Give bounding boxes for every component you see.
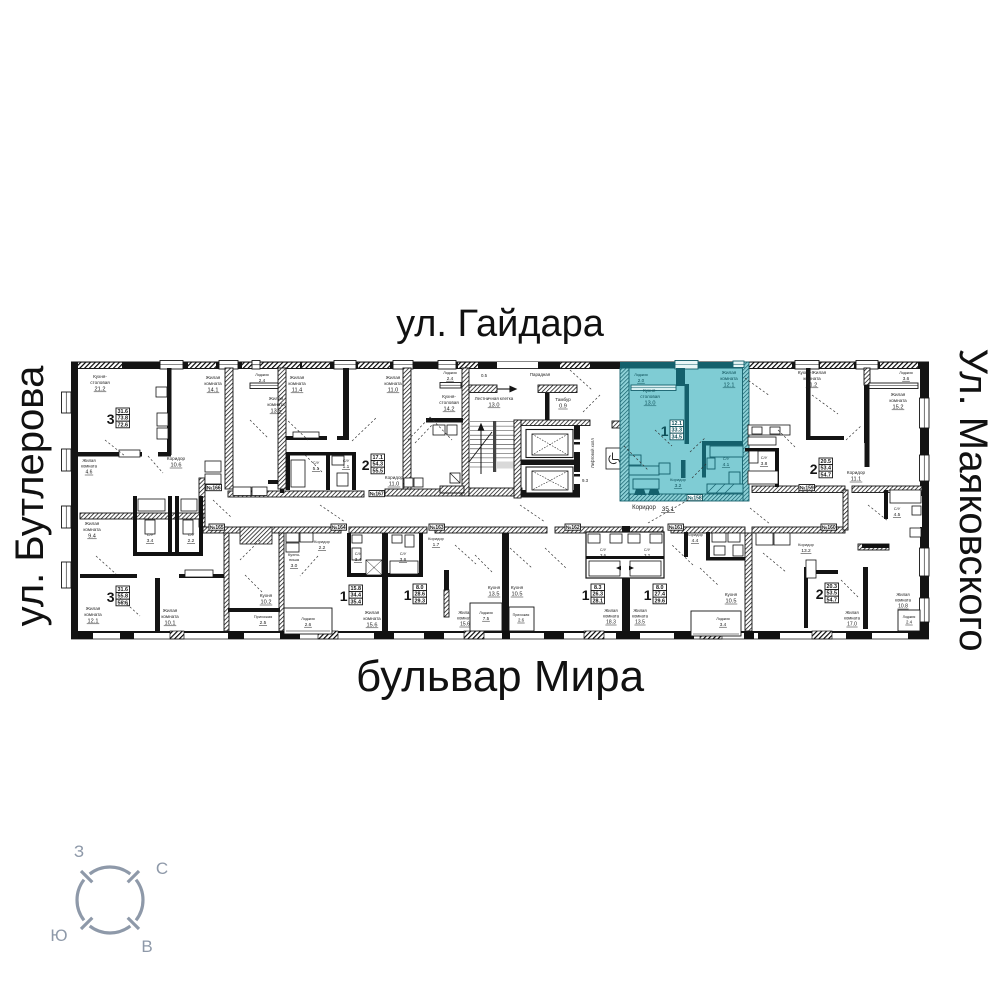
svg-text:Лоджия: Лоджия	[634, 373, 647, 377]
svg-text:29.6: 29.6	[655, 598, 666, 604]
svg-text:С/У: С/У	[600, 548, 607, 552]
svg-text:С/У: С/У	[761, 455, 768, 460]
svg-text:3.6: 3.6	[600, 553, 607, 558]
svg-text:54.7: 54.7	[821, 472, 832, 478]
svg-text:№164: №164	[332, 525, 346, 531]
svg-text:Жилая: Жилая	[896, 592, 909, 597]
svg-text:9.4: 9.4	[88, 533, 96, 539]
svg-text:Коридор: Коридор	[428, 536, 445, 541]
svg-text:2.0: 2.0	[638, 378, 645, 383]
svg-text:2.2: 2.2	[319, 545, 326, 551]
svg-text:комната: комната	[603, 613, 620, 618]
svg-text:3.4: 3.4	[720, 622, 727, 627]
svg-text:Коридор: Коридор	[687, 532, 704, 537]
svg-text:11.4: 11.4	[292, 387, 302, 393]
svg-text:Лоджия: Лоджия	[903, 615, 916, 619]
svg-text:Ю: Ю	[50, 926, 67, 945]
svg-text:комната: комната	[632, 613, 649, 618]
svg-text:1: 1	[340, 588, 348, 604]
svg-text:Жилая: Жилая	[722, 370, 737, 375]
svg-text:10.1: 10.1	[165, 620, 176, 626]
svg-text:Парадная: Парадная	[530, 372, 551, 377]
svg-text:4.4: 4.4	[692, 538, 699, 544]
svg-text:13.2: 13.2	[801, 548, 811, 554]
svg-text:Коридор: Коридор	[167, 456, 186, 461]
svg-text:55.5: 55.5	[373, 468, 384, 474]
svg-text:С/У: С/У	[400, 551, 407, 556]
svg-text:Жилая: Жилая	[86, 606, 101, 611]
svg-text:С/У: С/У	[355, 551, 362, 556]
svg-text:№167: №167	[370, 491, 384, 497]
svg-text:4.6: 4.6	[86, 470, 93, 476]
svg-text:комната: комната	[363, 616, 381, 621]
svg-text:56.6: 56.6	[118, 600, 129, 606]
svg-text:С/У: С/У	[313, 460, 320, 465]
svg-text:1.1: 1.1	[343, 464, 350, 470]
svg-text:№165: №165	[210, 525, 224, 531]
svg-text:10.5: 10.5	[512, 592, 523, 598]
svg-text:2.4: 2.4	[906, 620, 913, 625]
svg-text:Жилая: Жилая	[845, 610, 858, 615]
svg-text:комната: комната	[81, 463, 98, 468]
svg-text:столовая: столовая	[640, 394, 660, 399]
svg-text:10.5: 10.5	[726, 599, 737, 605]
svg-text:0.5: 0.5	[481, 373, 488, 378]
svg-text:В: В	[141, 937, 152, 956]
svg-text:2.6: 2.6	[305, 622, 312, 627]
svg-text:№163: №163	[430, 525, 444, 531]
svg-text:Жилая: Жилая	[386, 375, 401, 380]
svg-text:3.2: 3.2	[675, 483, 682, 489]
svg-text:комната: комната	[83, 527, 101, 532]
svg-text:11.2: 11.2	[807, 382, 817, 388]
svg-text:2: 2	[810, 461, 818, 477]
svg-text:13.5: 13.5	[635, 620, 645, 626]
svg-text:Лоджия: Лоджия	[301, 617, 314, 621]
svg-text:0.9: 0.9	[559, 404, 567, 410]
svg-text:14.2: 14.2	[444, 406, 455, 412]
svg-text:3: 3	[107, 411, 115, 427]
svg-text:3.8: 3.8	[761, 461, 768, 467]
svg-text:Кухня-: Кухня-	[442, 394, 456, 399]
svg-text:Лоджия: Лоджия	[716, 617, 729, 621]
svg-text:С: С	[156, 859, 168, 878]
svg-text:35.4: 35.4	[351, 599, 362, 605]
svg-text:10.6: 10.6	[171, 463, 182, 469]
svg-text:Коридор: Коридор	[632, 505, 656, 511]
svg-text:Жилая: Жилая	[365, 610, 380, 615]
svg-text:29.3: 29.3	[415, 598, 426, 604]
svg-text:С/У: С/У	[343, 458, 350, 463]
svg-text:12.1: 12.1	[88, 618, 99, 624]
svg-text:2.5: 2.5	[260, 620, 267, 626]
svg-text:комната: комната	[384, 381, 402, 386]
svg-text:Жилая: Жилая	[163, 608, 178, 613]
svg-text:3.4: 3.4	[147, 538, 154, 544]
svg-text:Прихожая: Прихожая	[254, 614, 273, 619]
svg-text:13.5: 13.5	[271, 408, 282, 414]
svg-text:3: 3	[107, 589, 115, 605]
svg-text:№162: №162	[566, 525, 580, 531]
svg-text:столовая: столовая	[439, 400, 459, 405]
svg-text:ул. Гайдара: ул. Гайдара	[396, 303, 605, 345]
svg-text:бульвар Мира: бульвар Мира	[356, 652, 645, 701]
svg-text:Лоджия: Лоджия	[899, 371, 912, 375]
svg-text:1: 1	[404, 587, 412, 603]
svg-text:№160: №160	[822, 525, 836, 531]
svg-text:№158: №158	[688, 495, 702, 501]
svg-text:Лифтовой холл: Лифтовой холл	[590, 438, 595, 468]
svg-text:ниша: ниша	[289, 557, 300, 562]
svg-text:Лестничная клетка: Лестничная клетка	[475, 396, 514, 401]
svg-text:З: З	[74, 842, 84, 861]
svg-text:Кухня: Кухня	[488, 585, 501, 590]
svg-text:2: 2	[816, 586, 824, 602]
svg-text:С/У: С/У	[644, 548, 651, 552]
svg-text:15.2: 15.2	[893, 404, 904, 410]
svg-text:комната: комната	[267, 402, 285, 407]
svg-text:№166: №166	[207, 485, 221, 491]
svg-text:Жилая: Жилая	[206, 375, 221, 380]
svg-text:С/У: С/У	[147, 532, 154, 537]
svg-text:Жилая: Жилая	[85, 521, 100, 526]
svg-text:13.0: 13.0	[489, 402, 500, 408]
svg-text:комната: комната	[720, 376, 738, 381]
svg-text:С/У: С/У	[894, 506, 901, 511]
svg-text:3.6: 3.6	[400, 557, 407, 563]
svg-text:Лоджия: Лоджия	[443, 371, 456, 375]
svg-text:4.1: 4.1	[723, 462, 730, 468]
svg-text:2: 2	[362, 457, 370, 473]
svg-text:1.7: 1.7	[433, 542, 440, 548]
svg-text:9.3: 9.3	[582, 478, 589, 483]
svg-text:Кухня-: Кухня-	[643, 388, 657, 393]
svg-text:Жилая: Жилая	[633, 608, 646, 613]
svg-text:комната: комната	[288, 381, 306, 386]
svg-text:Коридор: Коридор	[385, 475, 404, 480]
svg-text:комната: комната	[889, 398, 907, 403]
svg-text:комната: комната	[204, 381, 222, 386]
svg-text:комната: комната	[161, 614, 179, 619]
svg-text:14.1: 14.1	[208, 387, 219, 393]
svg-text:2.6: 2.6	[518, 618, 525, 623]
svg-text:С/У: С/У	[188, 532, 195, 537]
svg-text:28.1: 28.1	[593, 598, 604, 604]
svg-text:Тамбур: Тамбур	[555, 397, 571, 402]
svg-text:Коридор: Коридор	[670, 477, 687, 482]
svg-text:35.1: 35.1	[662, 506, 675, 513]
svg-text:18.3: 18.3	[606, 620, 616, 626]
svg-text:Лоджия: Лоджия	[255, 373, 268, 377]
svg-text:комната: комната	[84, 612, 102, 617]
svg-text:1: 1	[644, 587, 652, 603]
svg-text:Лоджия: Лоджия	[479, 611, 492, 615]
svg-text:комната: комната	[844, 615, 861, 620]
svg-text:№159: №159	[800, 485, 814, 491]
svg-text:Жилая: Жилая	[269, 396, 284, 401]
svg-text:13.0: 13.0	[645, 400, 656, 406]
svg-text:Коридор: Коридор	[798, 542, 815, 547]
svg-text:72.6: 72.6	[118, 422, 129, 428]
svg-text:13.5: 13.5	[489, 592, 500, 598]
svg-text:2.4: 2.4	[259, 378, 266, 383]
svg-text:Кухня: Кухня	[511, 585, 524, 590]
svg-text:4.5: 4.5	[894, 512, 901, 518]
svg-text:Коридор: Коридор	[314, 539, 331, 544]
svg-text:11.1: 11.1	[851, 477, 861, 483]
svg-text:11.0: 11.0	[389, 482, 399, 488]
svg-text:1: 1	[582, 587, 590, 603]
svg-text:Жилая: Жилая	[290, 375, 305, 380]
svg-text:10.8: 10.8	[898, 604, 908, 610]
svg-text:34.5: 34.5	[672, 434, 683, 440]
svg-text:3.4: 3.4	[355, 557, 362, 563]
svg-text:Кухня: Кухня	[725, 592, 738, 597]
svg-text:17.0: 17.0	[847, 622, 857, 628]
svg-text:Жилая: Жилая	[604, 608, 617, 613]
svg-text:Кухня: Кухня	[260, 593, 273, 598]
svg-text:Коридор: Коридор	[847, 470, 866, 475]
svg-text:Кухня-: Кухня-	[93, 374, 107, 379]
svg-text:комната: комната	[803, 376, 821, 381]
svg-text:54.7: 54.7	[827, 597, 838, 603]
svg-text:Жилая: Жилая	[82, 458, 95, 463]
svg-text:Жилая: Жилая	[891, 392, 906, 397]
svg-text:Ул. Маяковского: Ул. Маяковского	[951, 348, 995, 651]
svg-text:Прихожая: Прихожая	[513, 613, 530, 617]
svg-text:3.0: 3.0	[291, 563, 298, 569]
svg-text:2.4: 2.4	[447, 376, 454, 381]
svg-text:10.2: 10.2	[261, 600, 272, 606]
svg-text:15.6: 15.6	[367, 622, 378, 628]
svg-text:12.1: 12.1	[724, 382, 735, 388]
svg-text:15.6: 15.6	[460, 622, 470, 628]
svg-text:7.5: 7.5	[483, 616, 490, 621]
svg-text:ул. Бутлерова: ул. Бутлерова	[8, 365, 52, 626]
svg-text:комната: комната	[895, 597, 912, 602]
svg-text:№161: №161	[669, 525, 683, 531]
svg-text:3.6: 3.6	[903, 376, 910, 381]
svg-text:2.2: 2.2	[188, 538, 195, 544]
svg-text:21.2: 21.2	[95, 386, 106, 392]
svg-text:столовая: столовая	[90, 380, 110, 385]
svg-text:3.2: 3.2	[644, 553, 651, 558]
svg-text:11.0: 11.0	[388, 387, 398, 393]
svg-text:Кухня-Жилая: Кухня-Жилая	[798, 370, 827, 375]
